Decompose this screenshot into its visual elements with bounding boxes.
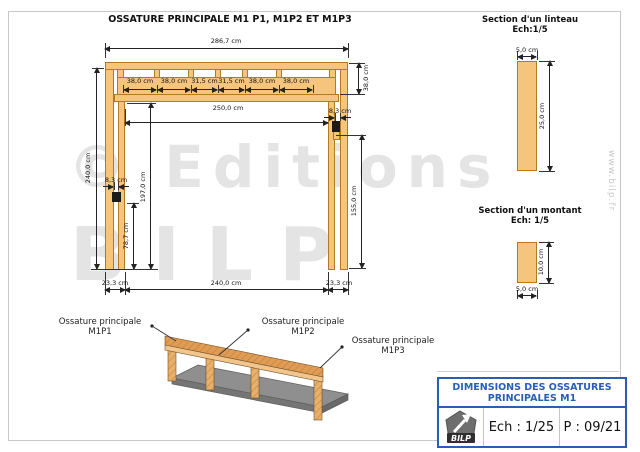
scale-value: Ech : 1/25 — [484, 408, 560, 446]
linteau-section-scale: Ech:1/5 — [450, 25, 610, 35]
dim-label-segment: 38,0 cm — [271, 78, 321, 85]
dimension-line — [548, 242, 549, 283]
bottom-chord — [114, 94, 339, 102]
title-block-title: DIMENSIONS DES OSSATURES PRINCIPALES M1 — [439, 379, 625, 408]
dim-label-overall-width: 286,7 cm — [176, 38, 276, 45]
iso-post-hatch — [314, 380, 322, 420]
iso-label-line2: M1P1 — [40, 327, 160, 337]
extension-line — [92, 68, 104, 69]
blocking-right — [332, 121, 340, 132]
dim-label-gap-right: 8,3 cm — [315, 108, 365, 115]
left-outer-post — [105, 69, 114, 270]
extension-line — [245, 85, 246, 93]
dim-label-linteau-height: 25,0 cm — [538, 94, 546, 138]
iso-label-line1: Ossature principale — [40, 317, 160, 327]
title-block-title-line2: PRINCIPALES M1 — [488, 393, 576, 404]
extension-line — [105, 43, 106, 58]
extension-line — [348, 43, 349, 58]
extension-line — [539, 61, 555, 62]
montant-section-title: Section d'un montant — [450, 206, 610, 216]
title-block-row: BILP Ech : 1/25 P : 09/21 — [439, 408, 625, 446]
dimension-line — [124, 89, 156, 90]
iso-label-m1p2: Ossature principale M1P2 — [243, 317, 363, 337]
dimension-line — [119, 186, 129, 187]
dimension-line — [328, 289, 348, 290]
dim-label-montant-height: 10,0 cm — [537, 240, 545, 284]
extension-line — [313, 85, 314, 93]
extension-line — [125, 109, 126, 126]
dimension-line — [150, 103, 151, 269]
page-value: P : 09/21 — [560, 408, 625, 446]
dimension-line — [246, 89, 278, 90]
extension-line — [336, 135, 366, 136]
linteau-section-rect — [517, 61, 537, 171]
logo-text: BILP — [451, 434, 471, 443]
dimension-line — [133, 203, 134, 269]
dim-label-opening-width: 250,0 cm — [178, 105, 278, 112]
drawing-sheet: © Editions BILP www.bilp.fr OSSATURE PRI… — [0, 0, 640, 452]
dim-label-total-height: 240,0 cm — [84, 146, 92, 190]
dim-label-bottom-left: 23,3 cm — [90, 280, 140, 287]
right-outer-post — [340, 69, 348, 270]
iso-label-line1: Ossature principale — [333, 336, 453, 346]
extension-line — [127, 103, 156, 104]
extension-line — [91, 269, 158, 270]
page-title: OSSATURE PRINCIPALE M1 P1, M1P2 ET M1P3 — [85, 14, 375, 25]
iso-post-hatch — [168, 350, 176, 381]
dim-label-right-stud: 155,0 cm — [350, 179, 358, 223]
blocking-left — [112, 192, 121, 202]
title-block: DIMENSIONS DES OSSATURES PRINCIPALES M1 … — [437, 377, 627, 448]
dimension-line — [158, 89, 190, 90]
dimension-line — [518, 56, 536, 57]
bilp-logo-icon: BILP — [443, 410, 479, 444]
linteau-section-title: Section d'un linteau — [450, 15, 610, 25]
dim-label-gap-left: 8,3 cm — [91, 177, 141, 184]
dimension-line — [324, 117, 334, 118]
iso-post-hatch — [206, 358, 214, 390]
extension-line — [123, 85, 124, 93]
dimension-line — [518, 295, 536, 296]
title-block-title-line1: DIMENSIONS DES OSSATURES — [452, 382, 611, 393]
dimension-line — [96, 68, 97, 269]
dim-label-linteau-width: 5,0 cm — [502, 47, 552, 54]
dimension-line — [549, 61, 550, 171]
dim-label-bottom-center: 240,0 cm — [176, 280, 276, 287]
dimension-line — [219, 89, 244, 90]
extension-line — [191, 85, 192, 93]
dimension-line — [105, 48, 348, 49]
montant-section-scale: Ech: 1/5 — [450, 216, 610, 226]
dim-label-bottom-right: 23,3 cm — [314, 280, 364, 287]
dim-label-left-stud: 78,7 cm — [122, 214, 130, 258]
iso-label-m1p3: Ossature principale M1P3 — [333, 336, 453, 356]
iso-label-line2: M1P3 — [333, 346, 453, 356]
extension-line — [157, 85, 158, 93]
iso-label-line1: Ossature principale — [243, 317, 363, 327]
dim-label-inner-height: 197,0 cm — [139, 165, 147, 209]
extension-line — [127, 203, 139, 204]
dim-label-montant-width: 5,0 cm — [502, 286, 552, 293]
dimension-line — [358, 63, 359, 94]
title-block-top-line — [437, 371, 619, 372]
dimension-line — [103, 186, 113, 187]
iso-label-m1p1: Ossature principale M1P1 — [40, 317, 160, 337]
top-plate — [105, 62, 348, 70]
montant-section-rect — [517, 242, 537, 283]
extension-line — [279, 85, 280, 93]
dimension-line — [280, 89, 312, 90]
extension-line — [349, 268, 366, 269]
dimension-line — [125, 289, 328, 290]
dimension-line — [361, 135, 362, 268]
extension-line — [539, 171, 555, 172]
watermark-url: www.bilp.fr — [606, 150, 616, 211]
dimension-line — [341, 117, 351, 118]
watermark-editions: © Editions — [68, 133, 500, 201]
extension-line — [218, 85, 219, 93]
dimension-line — [125, 122, 328, 123]
dimension-line — [192, 89, 217, 90]
dimension-line — [105, 289, 125, 290]
dim-label-header-height: 38,0 cm — [362, 56, 370, 100]
bilp-logo: BILP — [439, 408, 484, 446]
iso-post-hatch — [251, 367, 259, 398]
